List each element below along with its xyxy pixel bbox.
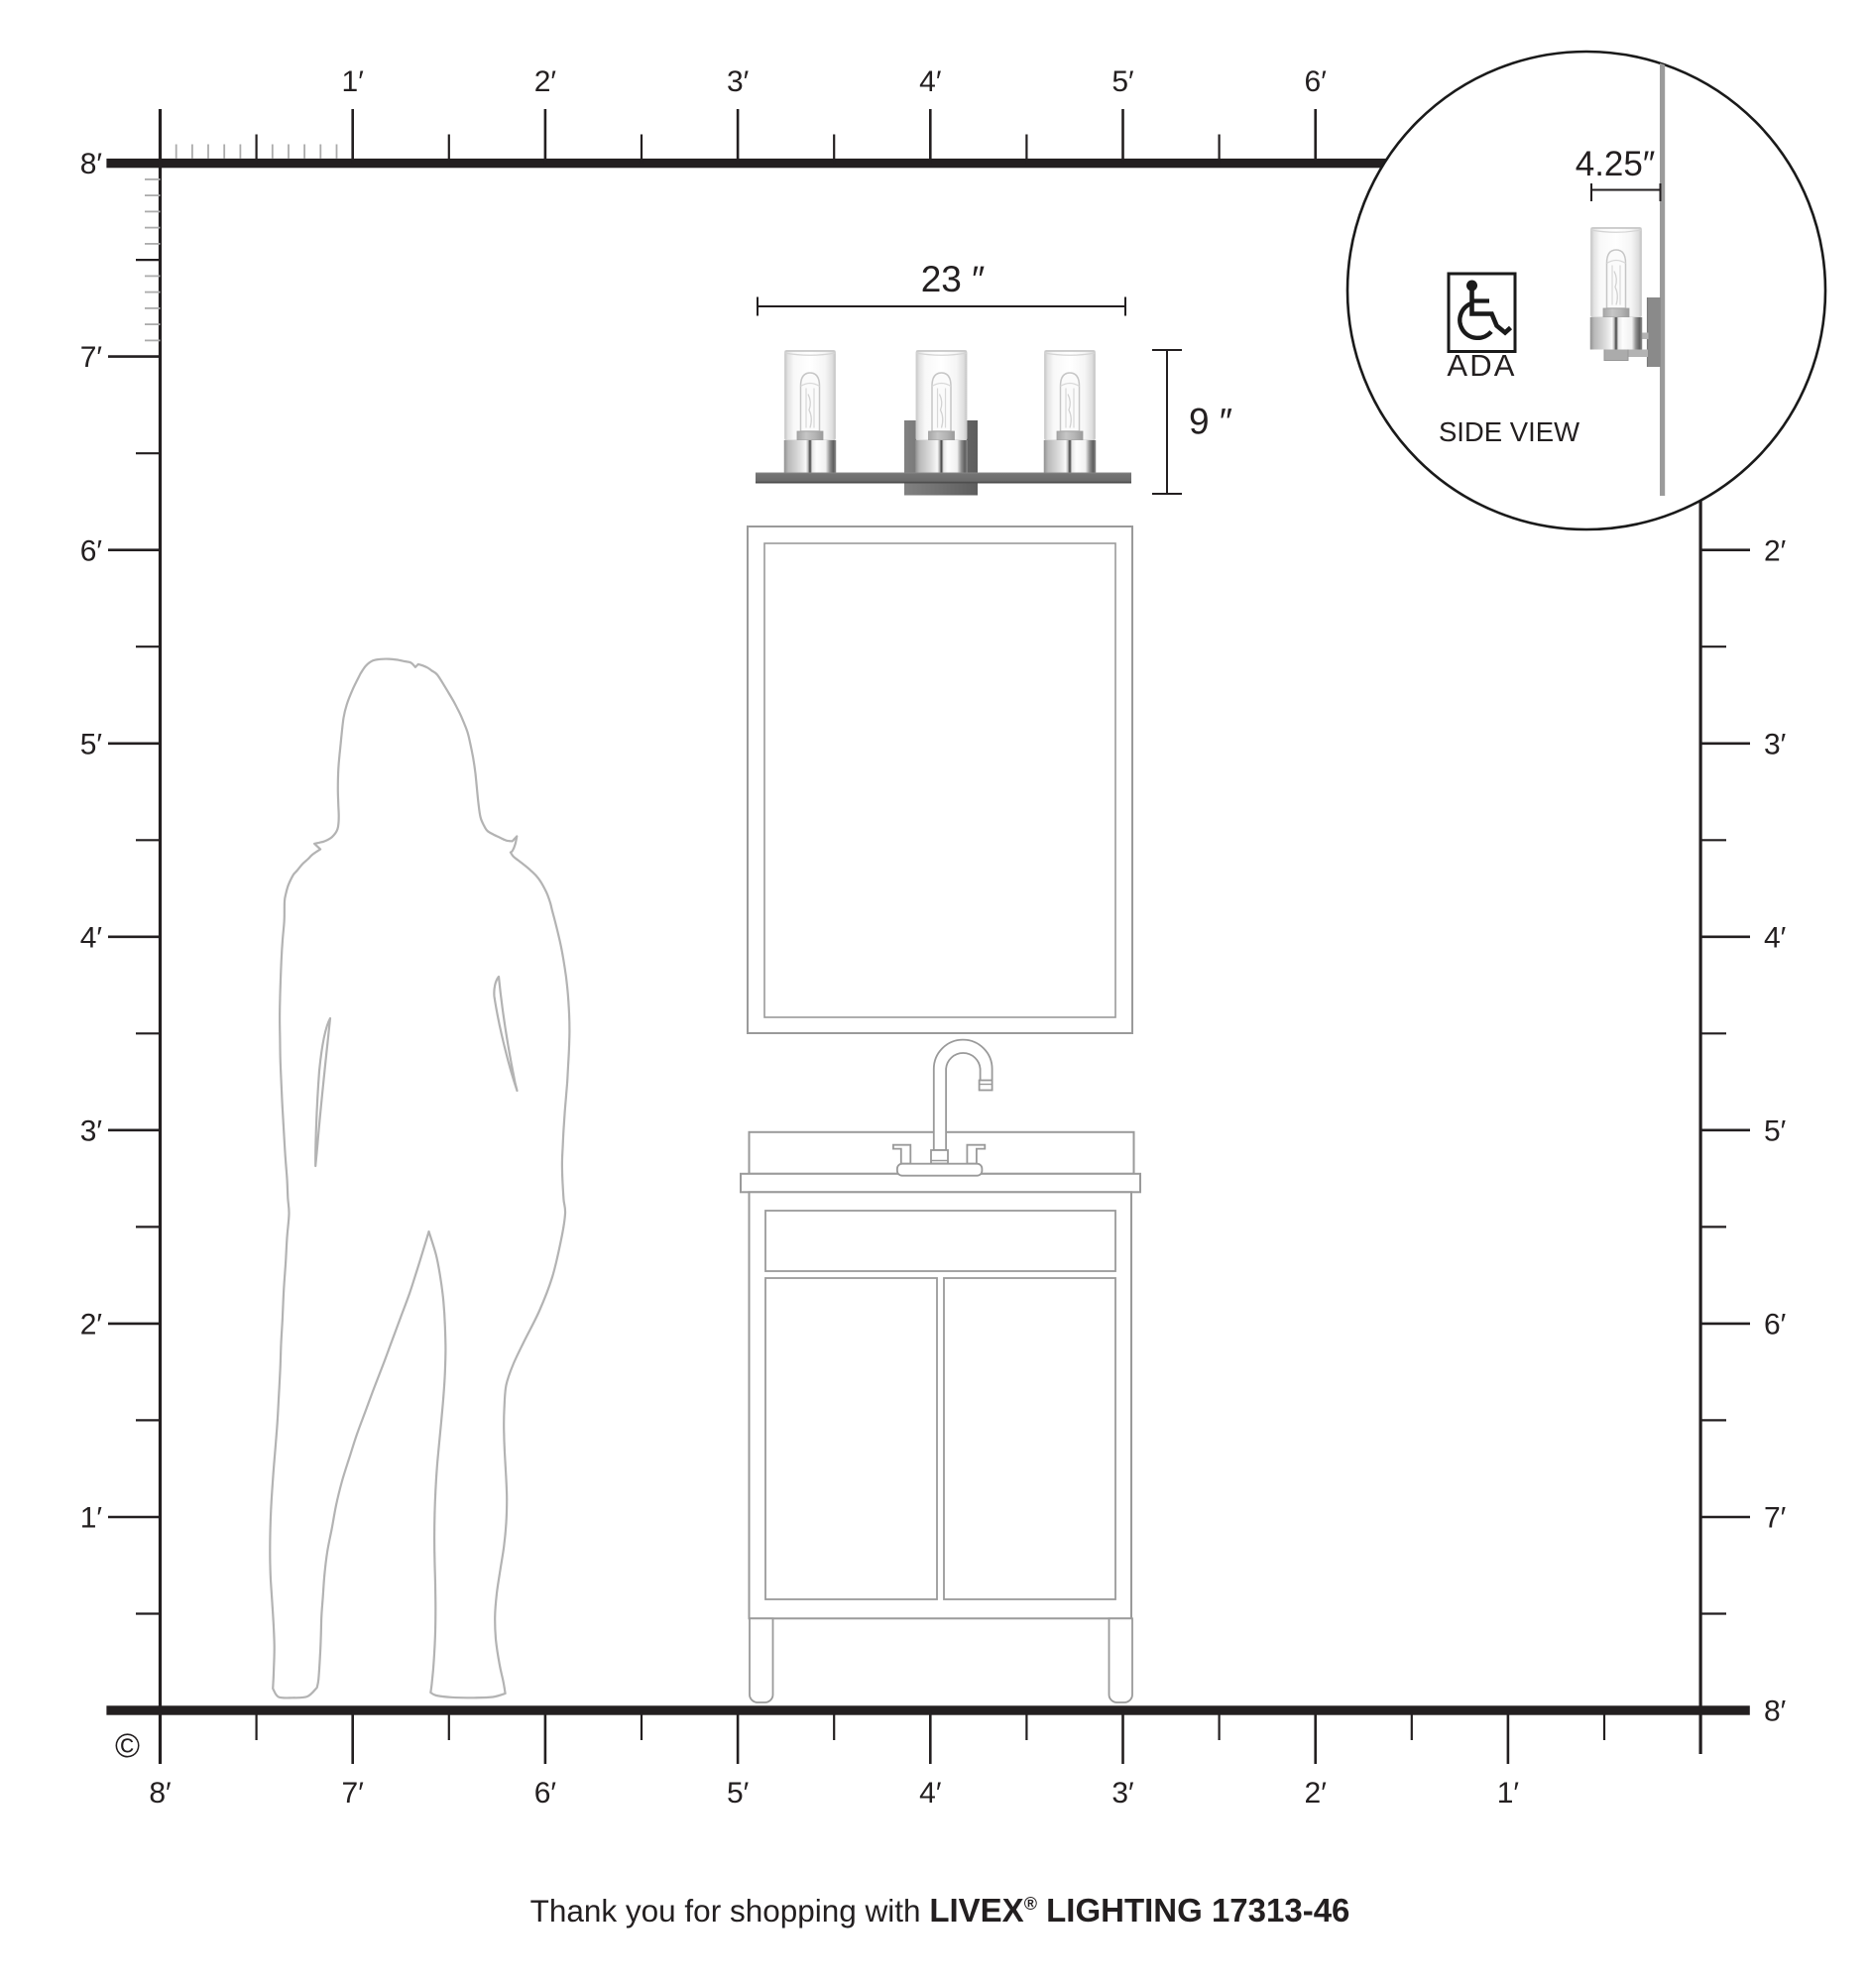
svg-text:4.25″: 4.25″ (1576, 145, 1656, 183)
svg-text:7′: 7′ (1764, 1502, 1787, 1535)
svg-text:1′: 1′ (342, 65, 365, 98)
svg-text:2′: 2′ (80, 1309, 103, 1342)
svg-text:1′: 1′ (1497, 1777, 1520, 1810)
svg-text:6′: 6′ (534, 1777, 557, 1810)
svg-text:7′: 7′ (342, 1777, 365, 1810)
svg-text:3′: 3′ (727, 65, 750, 98)
svg-text:2′: 2′ (1305, 1777, 1328, 1810)
svg-text:6′: 6′ (1764, 1309, 1787, 1342)
svg-text:4′: 4′ (919, 1777, 942, 1810)
svg-text:ADA: ADA (1447, 348, 1516, 383)
svg-text:2′: 2′ (1764, 534, 1787, 567)
svg-text:3′: 3′ (80, 1114, 103, 1147)
svg-text:8′: 8′ (80, 148, 103, 180)
svg-text:2′: 2′ (534, 65, 557, 98)
svg-text:5′: 5′ (80, 728, 103, 760)
svg-text:4′: 4′ (1764, 921, 1787, 954)
svg-text:4′: 4′ (80, 921, 103, 954)
svg-text:8′: 8′ (149, 1777, 172, 1810)
svg-text:1′: 1′ (80, 1502, 103, 1535)
svg-text:5′: 5′ (727, 1777, 750, 1810)
svg-text:9 ″: 9 ″ (1189, 402, 1232, 442)
svg-text:4′: 4′ (919, 65, 942, 98)
svg-text:8′: 8′ (1764, 1696, 1787, 1728)
svg-text:©: © (115, 1727, 140, 1765)
svg-text:7′: 7′ (80, 341, 103, 374)
svg-text:3′: 3′ (1111, 1777, 1134, 1810)
svg-text:Thank you for shopping with LI: Thank you for shopping with LIVEX® LIGHT… (530, 1892, 1350, 1929)
svg-text:5′: 5′ (1764, 1114, 1787, 1147)
svg-text:6′: 6′ (1305, 65, 1328, 98)
svg-text:6′: 6′ (80, 534, 103, 567)
svg-text:5′: 5′ (1111, 65, 1134, 98)
svg-text:3′: 3′ (1764, 728, 1787, 760)
svg-text:23 ″: 23 ″ (921, 259, 986, 299)
svg-text:SIDE VIEW: SIDE VIEW (1439, 416, 1579, 447)
